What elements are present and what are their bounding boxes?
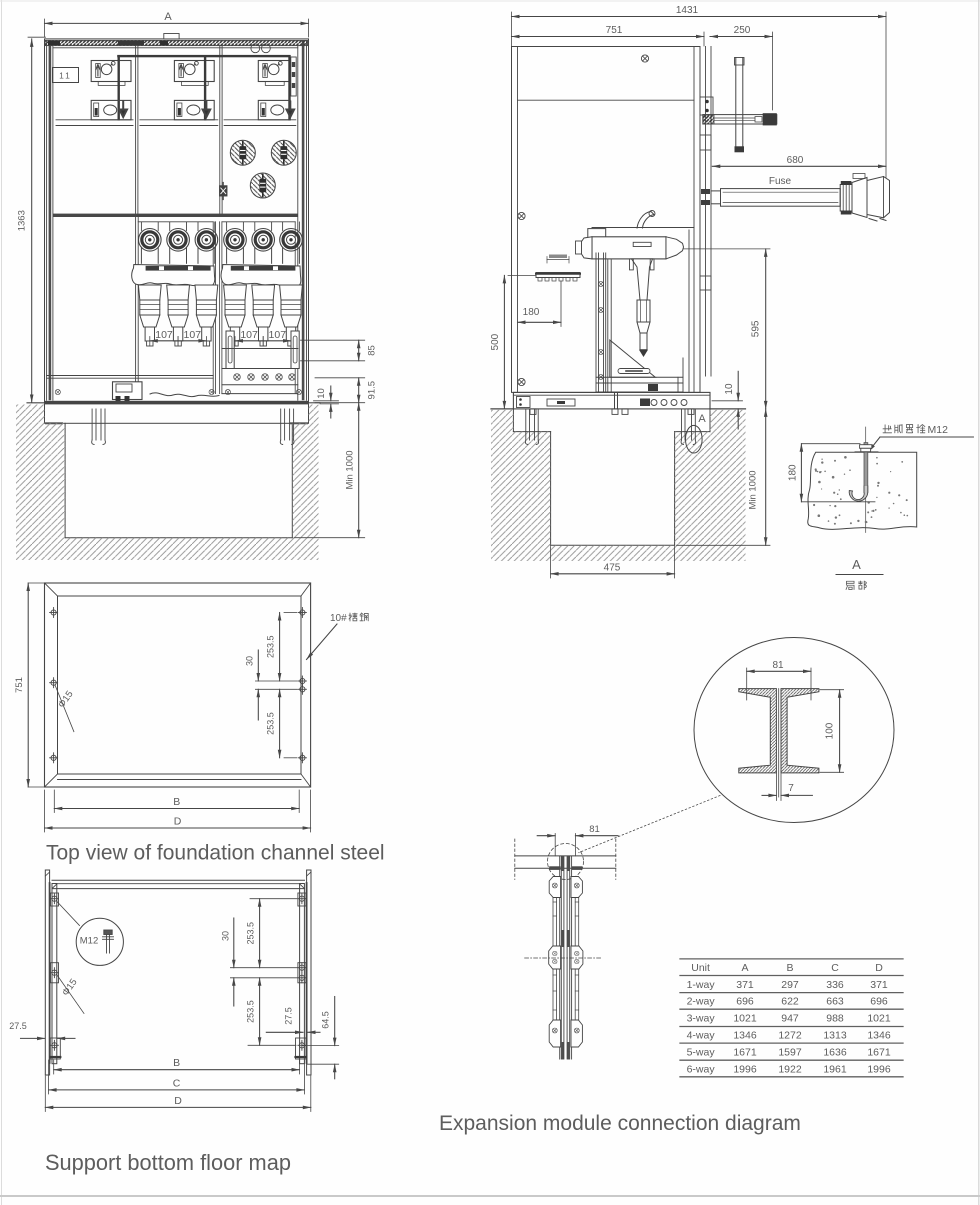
svg-text:107: 107 [155,329,173,341]
svg-text:D: D [174,1095,182,1107]
svg-text:B: B [786,962,793,974]
svg-text:297: 297 [781,979,799,991]
svg-text:696: 696 [870,996,888,1008]
svg-text:D: D [875,962,883,974]
svg-text:Expansion module connection di: Expansion module connection diagram [439,1112,801,1135]
svg-text:622: 622 [781,996,799,1008]
svg-text:B: B [173,1057,180,1069]
svg-text:250: 250 [734,25,751,36]
svg-text:1346: 1346 [733,1030,757,1042]
svg-text:475: 475 [604,562,621,573]
svg-text:253.5: 253.5 [266,712,276,735]
svg-text:107: 107 [269,329,287,341]
svg-text:64.5: 64.5 [321,1011,331,1029]
svg-text:B: B [173,796,180,808]
svg-text:1346: 1346 [867,1030,891,1042]
svg-text:5-way: 5-way [687,1046,716,1058]
svg-text:107: 107 [184,329,202,341]
svg-text:10: 10 [724,383,735,395]
svg-text:1272: 1272 [778,1030,802,1042]
svg-text:1961: 1961 [823,1063,847,1075]
svg-text:85: 85 [367,345,378,356]
svg-text:C: C [831,962,839,974]
svg-text:91.5: 91.5 [367,381,378,400]
svg-text:Support bottom floor map: Support bottom floor map [45,1150,291,1175]
svg-text:D: D [174,816,182,828]
svg-text:663: 663 [826,996,844,1008]
svg-text:180: 180 [523,307,540,318]
svg-text:1671: 1671 [733,1046,757,1058]
svg-text:1021: 1021 [867,1013,891,1025]
svg-text:7: 7 [788,783,794,794]
svg-text:10#: 10# [330,613,347,624]
svg-text:371: 371 [870,979,888,991]
svg-text:Unit: Unit [691,962,710,974]
svg-text:1671: 1671 [867,1046,891,1058]
svg-text:1597: 1597 [778,1046,802,1058]
svg-text:1996: 1996 [733,1063,757,1075]
svg-text:A: A [164,11,172,23]
svg-text:1021: 1021 [733,1013,757,1025]
svg-text:336: 336 [826,979,844,991]
svg-text:253.5: 253.5 [245,1000,255,1023]
svg-text:A: A [852,557,861,572]
svg-text:30: 30 [221,931,231,941]
svg-text:Min 1000: Min 1000 [748,470,759,509]
svg-text:751: 751 [14,677,25,693]
svg-text:1-way: 1-way [687,979,716,991]
svg-text:3-way: 3-way [687,1013,716,1025]
svg-text:C: C [173,1077,181,1089]
svg-text:30: 30 [245,656,255,666]
svg-text:1363: 1363 [17,210,28,231]
svg-text:371: 371 [736,979,754,991]
svg-text:27.5: 27.5 [9,1021,27,1031]
svg-text:11: 11 [59,71,72,81]
svg-text:100: 100 [825,722,836,739]
svg-text:107: 107 [240,329,258,341]
svg-text:988: 988 [826,1013,844,1025]
svg-text:595: 595 [751,320,762,337]
svg-text:1996: 1996 [867,1063,891,1075]
svg-text:27.5: 27.5 [284,1007,294,1025]
svg-text:180: 180 [788,464,799,481]
svg-text:947: 947 [781,1013,799,1025]
svg-text:Fuse: Fuse [769,176,792,187]
svg-text:A: A [698,413,706,425]
svg-text:81: 81 [772,660,784,671]
svg-text:1431: 1431 [676,5,699,16]
svg-text:81: 81 [589,824,600,835]
svg-text:10: 10 [316,388,327,399]
svg-text:696: 696 [736,996,754,1008]
svg-text:1922: 1922 [778,1063,802,1075]
svg-text:6-way: 6-way [687,1063,716,1075]
svg-text:253.5: 253.5 [266,635,276,658]
svg-text:500: 500 [490,333,501,350]
svg-text:1313: 1313 [823,1030,847,1042]
svg-text:680: 680 [787,155,804,166]
svg-text:253.5: 253.5 [245,922,255,945]
svg-text:A: A [741,962,748,974]
svg-text:2-way: 2-way [687,996,716,1008]
svg-text:4-way: 4-way [687,1030,716,1042]
svg-text:1636: 1636 [823,1046,847,1058]
svg-text:Top view of foundation channel: Top view of foundation channel steel [46,842,385,865]
svg-text:M12: M12 [80,936,98,947]
svg-text:751: 751 [606,25,623,36]
svg-text:Min 1000: Min 1000 [345,450,356,489]
svg-text:M12: M12 [928,424,949,436]
